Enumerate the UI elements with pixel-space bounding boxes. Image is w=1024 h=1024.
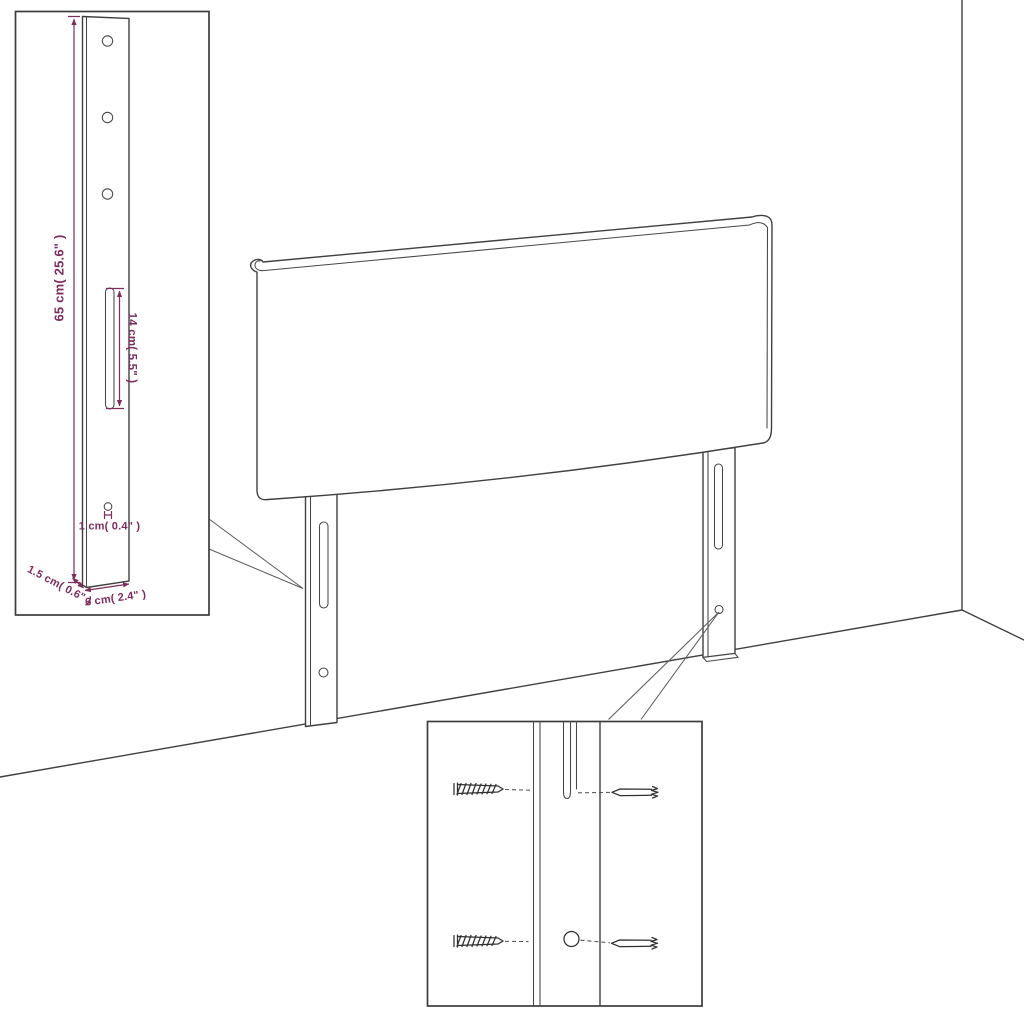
right-leg-slot: [715, 464, 723, 549]
floor-wall-line-right: [962, 610, 1024, 640]
dimension-hole-label: 1 cm( 0.4" ): [79, 521, 141, 533]
headboard-left-leg: [306, 491, 338, 727]
headboard-right-leg: [703, 448, 738, 662]
headboard-assembly-diagram: 65 cm( 25.6" ) 14 cm( 5.5" ) 1 cm( 0.4" …: [0, 0, 1024, 1024]
screw-detail-inset: [428, 722, 703, 1007]
left-leg-hole: [319, 668, 328, 677]
assembly-diagram-svg: 65 cm( 25.6" ) 14 cm( 5.5" ) 1 cm( 0.4" …: [0, 0, 1024, 1024]
dimension-height-label: 65 cm( 25.6" ): [52, 234, 67, 321]
leg-detail-inset: 65 cm( 25.6" ) 14 cm( 5.5" ) 1 cm( 0.4" …: [16, 12, 210, 616]
callout-line: [209, 549, 303, 589]
callout-line: [641, 612, 719, 720]
callout-line: [209, 519, 303, 589]
callout-line: [609, 612, 720, 720]
leg-inset-callout-lines: [209, 519, 303, 589]
left-leg-slot: [320, 522, 329, 608]
headboard-outline: [251, 215, 772, 499]
headboard-panel: [251, 215, 772, 499]
screw-inset-callout-lines: [609, 612, 720, 720]
dimension-slot-label: 14 cm( 5.5" ): [126, 313, 138, 384]
screw-detail-inset-frame: [428, 722, 703, 1007]
